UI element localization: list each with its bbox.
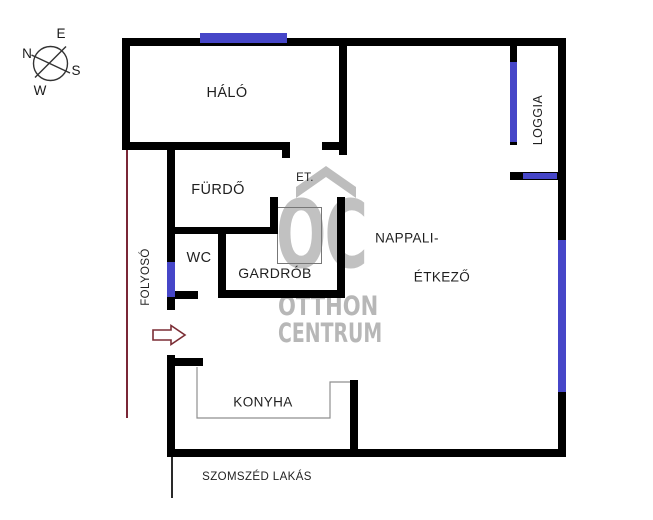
compass-label-w: W	[34, 83, 47, 98]
loggia-bottom-window	[523, 173, 557, 179]
wall-wc-wardrobe-divider	[218, 227, 226, 298]
loggia-side-window	[510, 62, 517, 142]
wardrobe-outline	[277, 207, 322, 264]
wall-bedroom-door-jamb	[282, 150, 290, 158]
wall-bedroom-bottom-right	[322, 142, 340, 150]
room-label-et: ET.	[296, 172, 314, 184]
compass-rose-icon: E N S W	[10, 16, 100, 108]
room-label-nappali-line1: NAPPALI-	[375, 231, 439, 246]
compass-label-n: N	[22, 46, 32, 61]
corridor-boundary-line	[126, 148, 128, 418]
room-label-halo: HÁLÓ	[206, 85, 247, 101]
wall-kitchen-right	[350, 380, 358, 457]
room-label-loggia: LOGGIA	[531, 95, 545, 145]
room-label-furdo: FÜRDŐ	[191, 182, 245, 198]
floorplan-canvas: E N S W OC OTTHON CENTRUM HÁLÓ FÜR	[0, 0, 653, 520]
compass-label-s: S	[71, 63, 80, 78]
livingroom-window	[558, 240, 566, 392]
room-label-wc: WC	[187, 250, 212, 266]
room-label-folyoso: FOLYOSÓ	[140, 248, 152, 306]
room-label-gardrob: GARDRÓB	[238, 265, 312, 281]
wall-kitchen-left	[167, 355, 175, 457]
wall-bottom	[167, 449, 566, 457]
compass-needle-es	[32, 55, 71, 73]
wall-bedroom-left	[122, 38, 130, 150]
entry-door	[167, 262, 175, 297]
wall-wardrobe-right	[337, 197, 345, 298]
wall-bathroom-right	[270, 197, 278, 234]
room-label-nappali-line2: ÉTKEZŐ	[414, 270, 470, 285]
room-label-konyha: KONYHA	[233, 395, 292, 410]
wall-bedroom-bottom-left	[122, 142, 290, 150]
compass-label-e: E	[56, 26, 65, 41]
wall-kitchen-stub	[167, 358, 203, 366]
neighbor-apartment-label: SZOMSZÉD LAKÁS	[202, 471, 312, 483]
entrance-arrow-icon	[150, 322, 190, 348]
wall-foyer-living-upper	[339, 38, 347, 155]
property-boundary-line	[171, 457, 173, 498]
wall-wardrobe-bottom	[218, 290, 343, 298]
bedroom-window	[200, 33, 287, 43]
watermark-line2: CENTRUM	[278, 320, 382, 347]
